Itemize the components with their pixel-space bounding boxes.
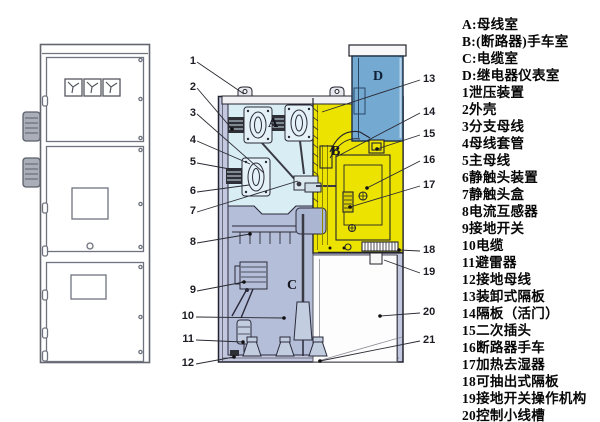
legend-item: 5主母线 [462,152,598,169]
legend-item: 10电缆 [462,237,598,254]
room-label-a: A [268,116,278,132]
callout-4: 4 [174,133,196,147]
callout-21: 21 [423,333,435,347]
callout-7: 7 [174,204,196,218]
callout-12: 12 [172,356,194,370]
legend-item: 14隔板（活门） [462,305,598,322]
callout-15: 15 [423,127,435,141]
callout-14: 14 [423,105,435,119]
callout-18: 18 [423,243,435,257]
callout-10: 10 [172,309,194,323]
legend-item: 16断路器手车 [462,339,598,356]
legend-item: 3分支母线 [462,118,598,135]
front-view-drawing [23,45,150,363]
cabinet-handle [23,112,40,187]
callout-13: 13 [423,72,435,86]
heater-dehumidifier [343,192,353,212]
callout-9: 9 [174,283,196,297]
legend-item: 7静触头盒 [462,186,598,203]
legend-item: 2外壳 [462,101,598,118]
legend-item: 8电流互感器 [462,203,598,220]
room-label-b: B [331,144,340,160]
legend-item: 15二次插头 [462,322,598,339]
legend-item: C:电缆室 [462,50,598,67]
callout-1: 1 [174,54,196,68]
callout-3: 3 [174,106,196,120]
legend-item: 9接地开关 [462,220,598,237]
legend-item: 17加热去湿器 [462,356,598,373]
callout-11: 11 [172,332,194,346]
legend-item: A:母线室 [462,16,598,33]
room-d-instrument-box [349,45,406,141]
callout-6: 6 [174,184,196,198]
callout-20: 20 [423,305,435,319]
callout-8: 8 [174,235,196,249]
legend-item: 19接地开关操作机构 [462,390,598,407]
callout-17: 17 [423,178,435,192]
legend-item: 1泄压装置 [462,84,598,101]
legend-item: 4母线套管 [462,135,598,152]
meter-gauges [65,79,120,96]
legend-item: B:(断路器)手车室 [462,33,598,50]
room-label-c: C [287,278,297,294]
earthing-switch-mechanism [370,253,382,264]
legend-item: 6静触头装置 [462,169,598,186]
section-view-drawing [219,45,407,362]
legend-item: 18可抽出式隔板 [462,373,598,390]
lower-front-door [313,255,397,362]
legend-item: 12接地母线 [462,271,598,288]
secondary-plug [369,140,384,153]
lifting-lug [238,87,344,96]
legend-item: 20控制小线槽 [462,407,598,422]
callout-16: 16 [423,153,435,167]
legend-item: 13装卸式隔板 [462,288,598,305]
legend-list: A:母线室 B:(断路器)手车室 C:电缆室 D:继电器仪表室 1泄压装置 2外… [462,16,598,422]
callout-2: 2 [174,80,196,94]
legend-item: D:继电器仪表室 [462,67,598,84]
switchgear-diagram-page: A B C D 1 2 3 4 5 6 7 8 9 10 11 12 13 14… [0,0,600,422]
callout-19: 19 [423,265,435,279]
legend-item: 11避雷器 [462,254,598,271]
room-label-d: D [373,69,383,85]
callout-5: 5 [174,155,196,169]
